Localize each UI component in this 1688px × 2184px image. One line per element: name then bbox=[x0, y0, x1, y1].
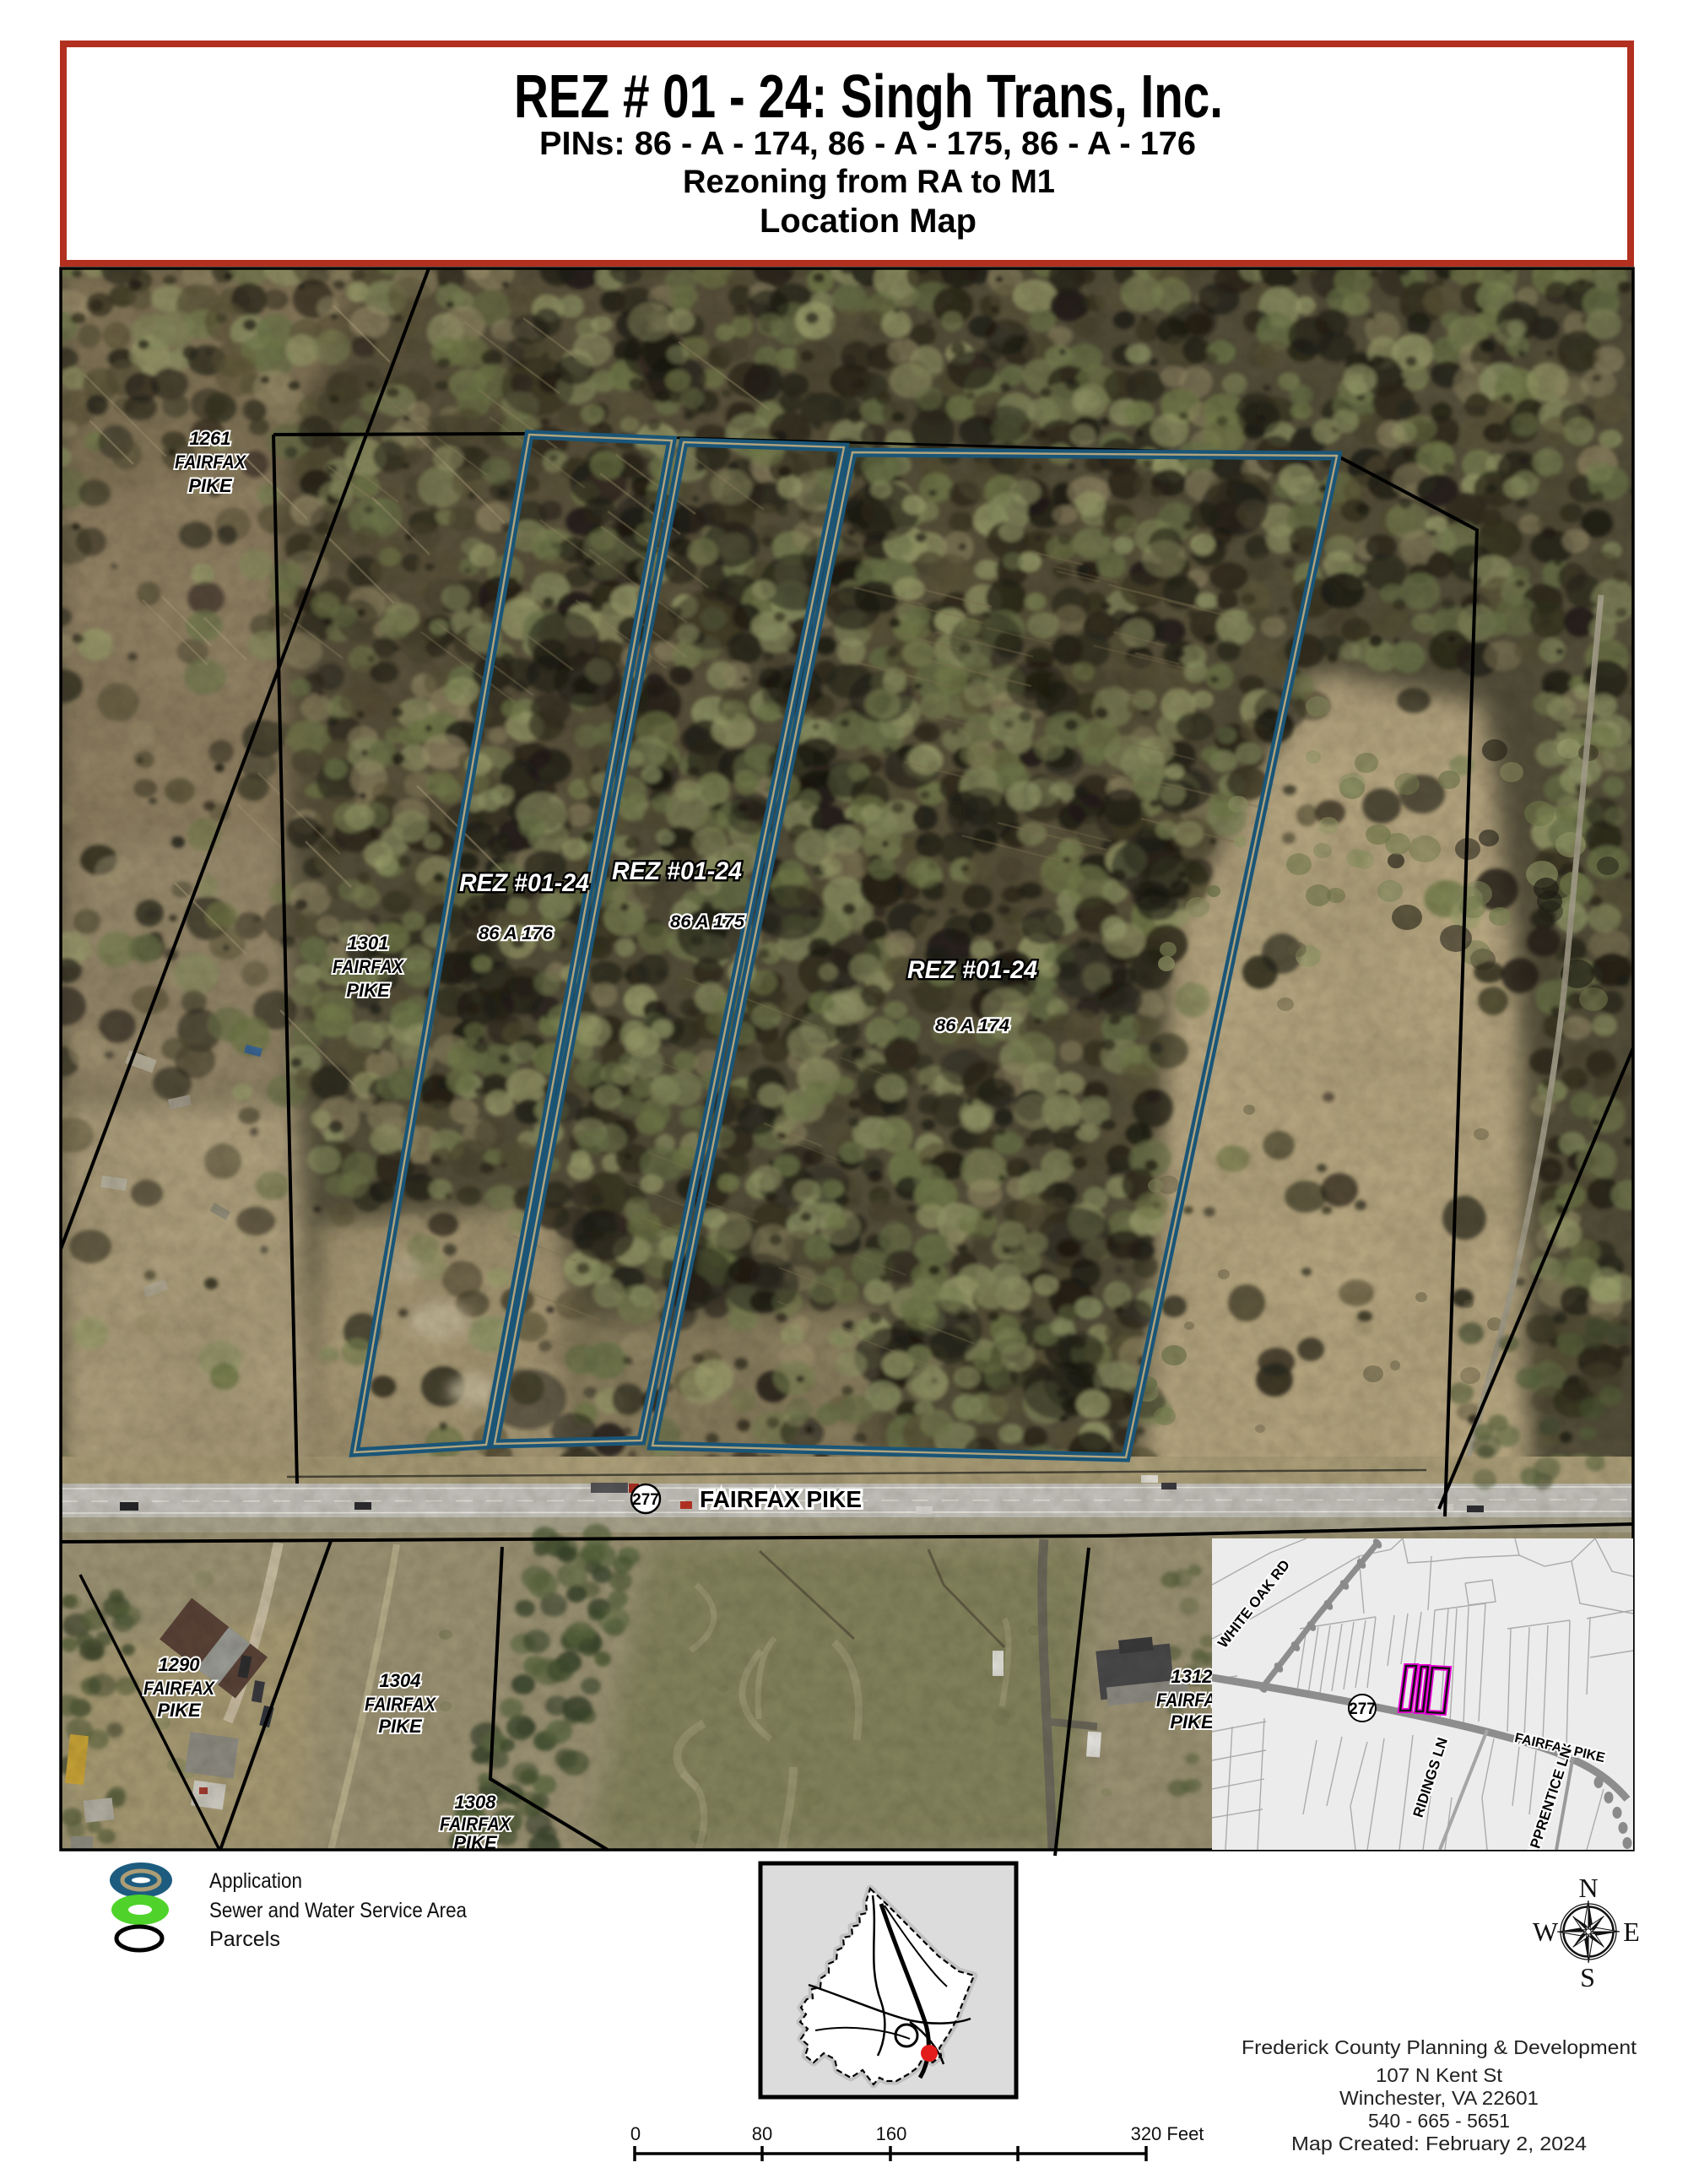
svg-text:N: N bbox=[1578, 1873, 1598, 1903]
svg-text:107 N Kent St: 107 N Kent St bbox=[1376, 2064, 1503, 2086]
svg-text:FAIRFAX PIKE: FAIRFAX PIKE bbox=[700, 1486, 862, 1512]
svg-text:Rezoning from RA to M1: Rezoning from RA to M1 bbox=[683, 164, 1055, 200]
svg-text:Application: Application bbox=[209, 1869, 302, 1893]
svg-text:FAIRFAX: FAIRFAX bbox=[175, 451, 246, 473]
svg-text:80: 80 bbox=[752, 2123, 772, 2144]
svg-text:W: W bbox=[1533, 1916, 1559, 1947]
svg-text:Parcels: Parcels bbox=[209, 1927, 280, 1951]
svg-text:1304: 1304 bbox=[380, 1670, 421, 1691]
svg-text:86 A 175: 86 A 175 bbox=[670, 912, 744, 932]
svg-text:REZ #01-24: REZ #01-24 bbox=[612, 857, 742, 885]
svg-text:REZ #01-24: REZ #01-24 bbox=[459, 869, 589, 897]
svg-text:1290: 1290 bbox=[159, 1654, 201, 1675]
svg-text:277: 277 bbox=[632, 1491, 659, 1509]
svg-text:REZ #01-24: REZ #01-24 bbox=[907, 956, 1037, 984]
svg-text:86 A 176: 86 A 176 bbox=[479, 924, 553, 943]
svg-text:1301: 1301 bbox=[348, 933, 389, 954]
svg-text:277: 277 bbox=[1349, 1700, 1376, 1718]
svg-text:1312: 1312 bbox=[1171, 1666, 1214, 1687]
svg-text:REZ # 01 - 24: Singh Trans, In: REZ # 01 - 24: Singh Trans, Inc. bbox=[514, 63, 1223, 131]
svg-text:FAIRFAX: FAIRFAX bbox=[365, 1694, 436, 1715]
svg-text:86 A 174: 86 A 174 bbox=[935, 1016, 1009, 1035]
svg-text:Frederick County Planning & De: Frederick County Planning & Development bbox=[1242, 2036, 1637, 2058]
svg-text:Winchester, VA 22601: Winchester, VA 22601 bbox=[1339, 2087, 1539, 2109]
svg-text:FAIRFAX: FAIRFAX bbox=[143, 1678, 215, 1699]
svg-text:PIKE: PIKE bbox=[157, 1700, 202, 1721]
svg-text:PIKE: PIKE bbox=[378, 1716, 423, 1737]
svg-text:PIKE: PIKE bbox=[346, 980, 391, 1001]
svg-text:PINs: 86 - A - 174, 86 - A - 1: PINs: 86 - A - 174, 86 - A - 175, 86 - A… bbox=[539, 126, 1196, 162]
svg-text:540 - 665 - 5651: 540 - 665 - 5651 bbox=[1368, 2110, 1510, 2132]
svg-text:S: S bbox=[1580, 1962, 1595, 1992]
svg-text:Location Map: Location Map bbox=[760, 203, 977, 240]
svg-text:1308: 1308 bbox=[455, 1792, 497, 1813]
svg-text:Sewer and Water Service Area: Sewer and Water Service Area bbox=[209, 1899, 467, 1922]
svg-text:FAIRFAX: FAIRFAX bbox=[333, 956, 404, 977]
svg-text:Map Created: February 2, 2024: Map Created: February 2, 2024 bbox=[1291, 2133, 1587, 2154]
svg-text:160: 160 bbox=[876, 2123, 907, 2144]
svg-text:320 Feet: 320 Feet bbox=[1131, 2123, 1204, 2144]
svg-text:1261: 1261 bbox=[190, 428, 231, 449]
svg-text:0: 0 bbox=[630, 2123, 641, 2144]
svg-text:PIKE: PIKE bbox=[1170, 1711, 1215, 1733]
svg-text:PIKE: PIKE bbox=[188, 475, 233, 496]
svg-text:E: E bbox=[1623, 1916, 1640, 1947]
